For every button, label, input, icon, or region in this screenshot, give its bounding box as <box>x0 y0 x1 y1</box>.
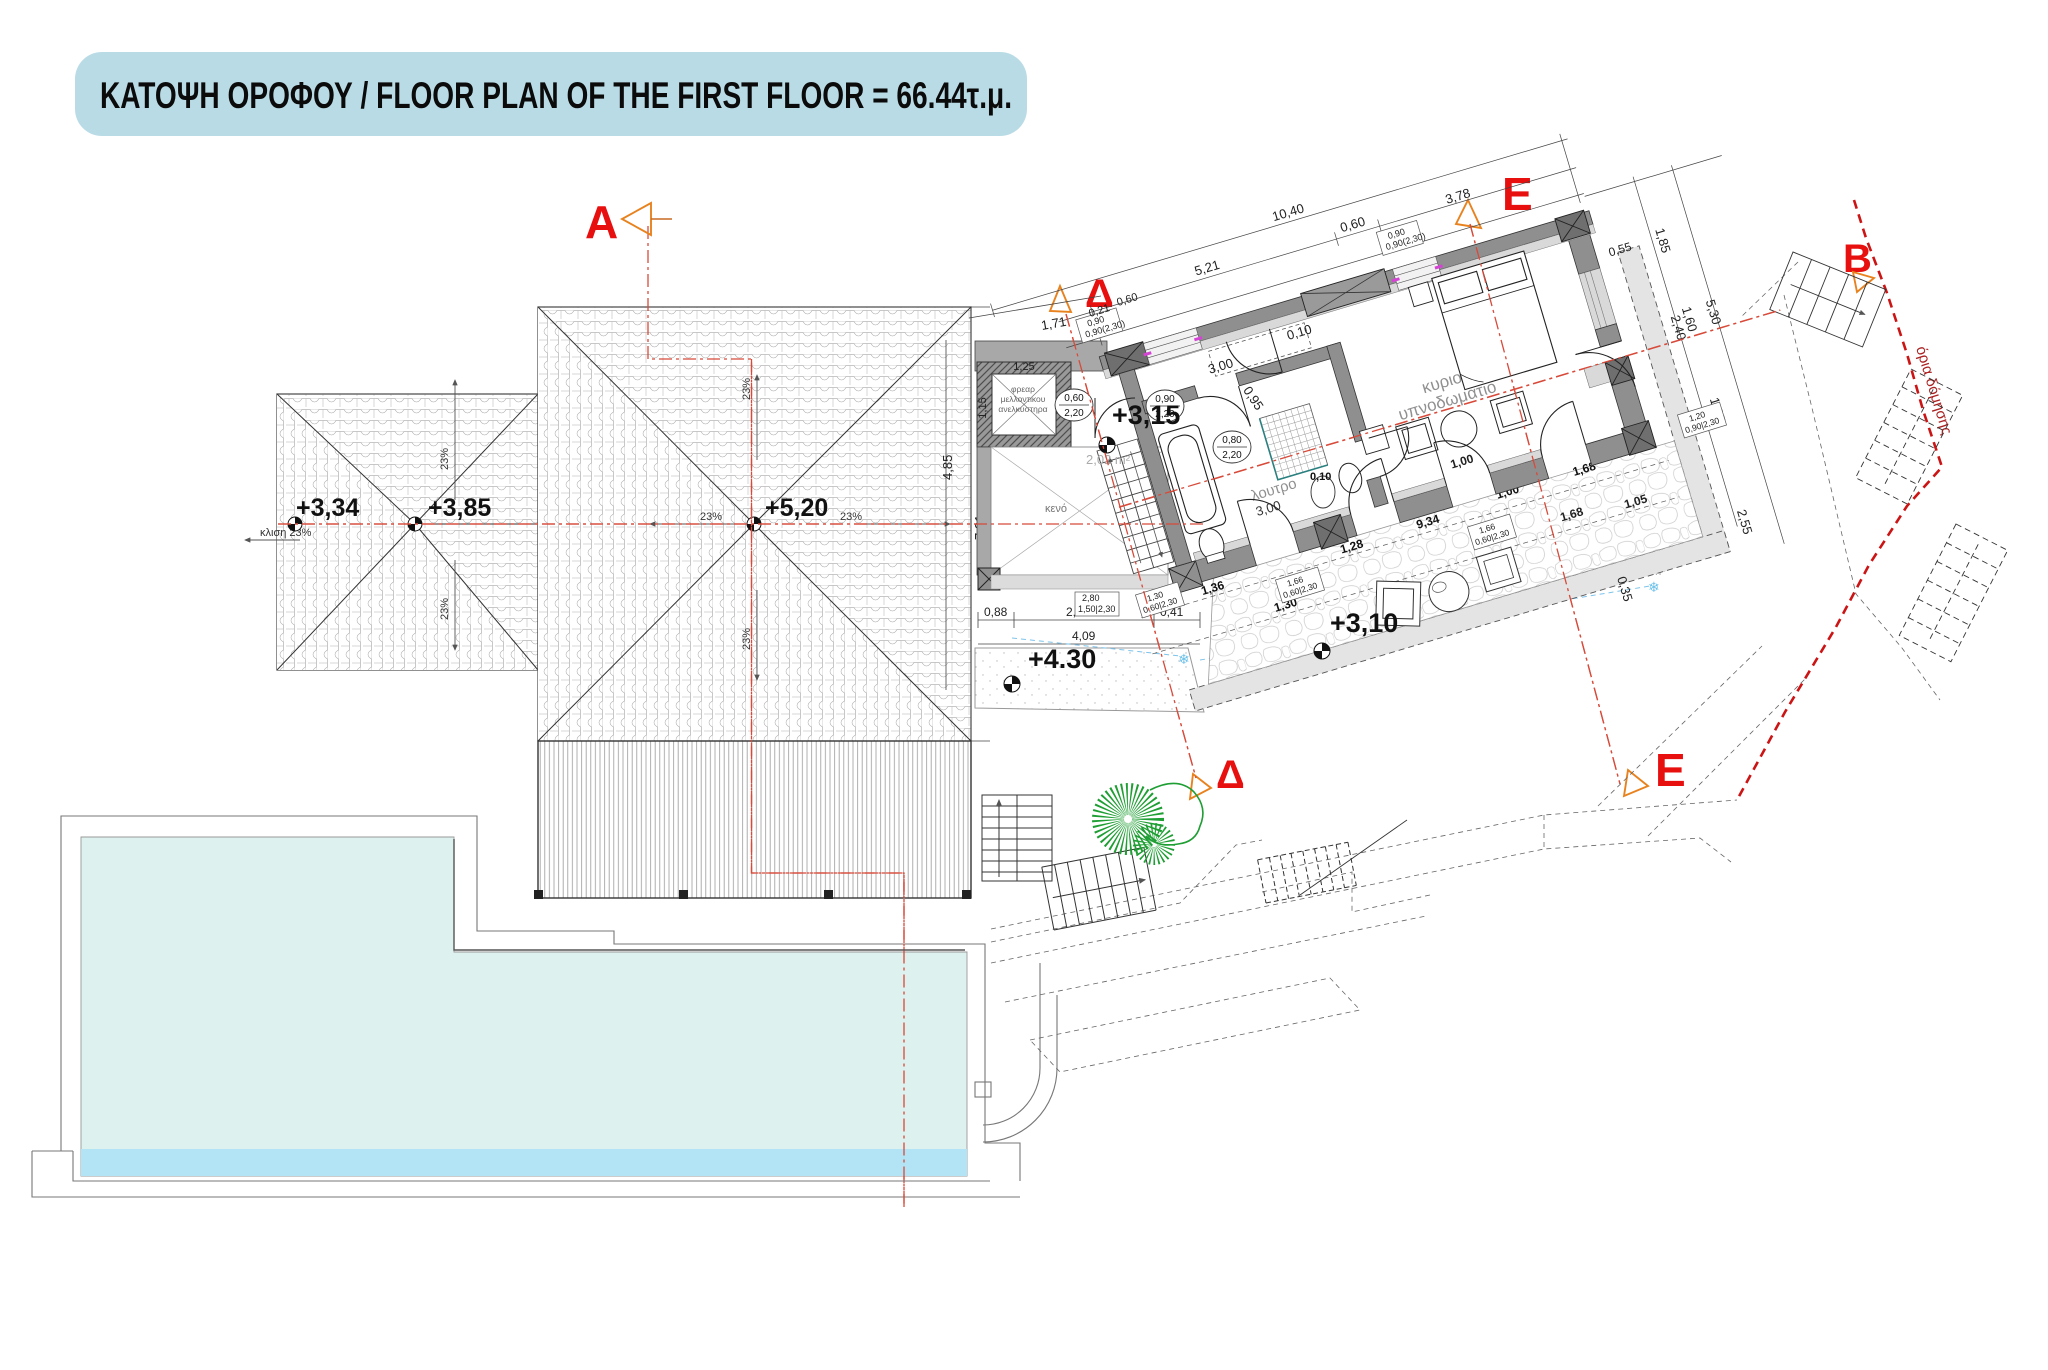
svg-text:❄: ❄ <box>1648 579 1660 595</box>
svg-text:0,10: 0,10 <box>1310 471 1331 483</box>
svg-text:E: E <box>1502 168 1533 220</box>
svg-text:23%: 23% <box>700 511 722 523</box>
svg-text:+3,15: +3,15 <box>1112 400 1180 430</box>
svg-text:23%: 23% <box>439 448 451 470</box>
svg-text:23%: 23% <box>840 511 862 523</box>
svg-text:κενό: κενό <box>1045 503 1067 515</box>
svg-text:E: E <box>1655 744 1686 796</box>
svg-text:+3,34: +3,34 <box>296 494 359 522</box>
svg-text:ανελκυστηρα: ανελκυστηρα <box>998 404 1047 414</box>
svg-text:1,50|2,30: 1,50|2,30 <box>1078 604 1115 614</box>
svg-text:Δ: Δ <box>1216 753 1245 797</box>
svg-text:+5,20: +5,20 <box>765 494 828 522</box>
svg-text:2,20: 2,20 <box>1222 450 1242 461</box>
svg-text:2,80: 2,80 <box>1082 593 1100 603</box>
svg-text:+4.30: +4.30 <box>1028 644 1096 674</box>
svg-text:0,88: 0,88 <box>984 605 1008 619</box>
svg-text:κλιση 23%: κλιση 23% <box>260 527 312 539</box>
svg-text:❄: ❄ <box>1178 651 1190 667</box>
svg-text:A: A <box>585 196 618 248</box>
svg-text:φρεαρ: φρεαρ <box>1011 384 1035 394</box>
svg-text:+3,85: +3,85 <box>428 494 491 522</box>
svg-text:23%: 23% <box>439 598 451 620</box>
svg-text:0,80: 0,80 <box>1222 435 1242 446</box>
svg-text:+3,10: +3,10 <box>1330 608 1398 638</box>
svg-text:1,25: 1,25 <box>1013 361 1034 373</box>
svg-text:0,60: 0,60 <box>1064 393 1084 404</box>
svg-text:1,15: 1,15 <box>977 397 989 418</box>
svg-text:4,85: 4,85 <box>940 455 955 480</box>
svg-text:2,20: 2,20 <box>1064 408 1084 419</box>
svg-text:4,09: 4,09 <box>1072 629 1096 643</box>
svg-text:ΚΑΤΟΨΗ ΟΡΟΦΟΥ / FLOOR PLAN OF: ΚΑΤΟΨΗ ΟΡΟΦΟΥ / FLOOR PLAN OF THE FIRST … <box>100 75 1012 116</box>
svg-text:μελλοντικου: μελλοντικου <box>1001 394 1046 404</box>
